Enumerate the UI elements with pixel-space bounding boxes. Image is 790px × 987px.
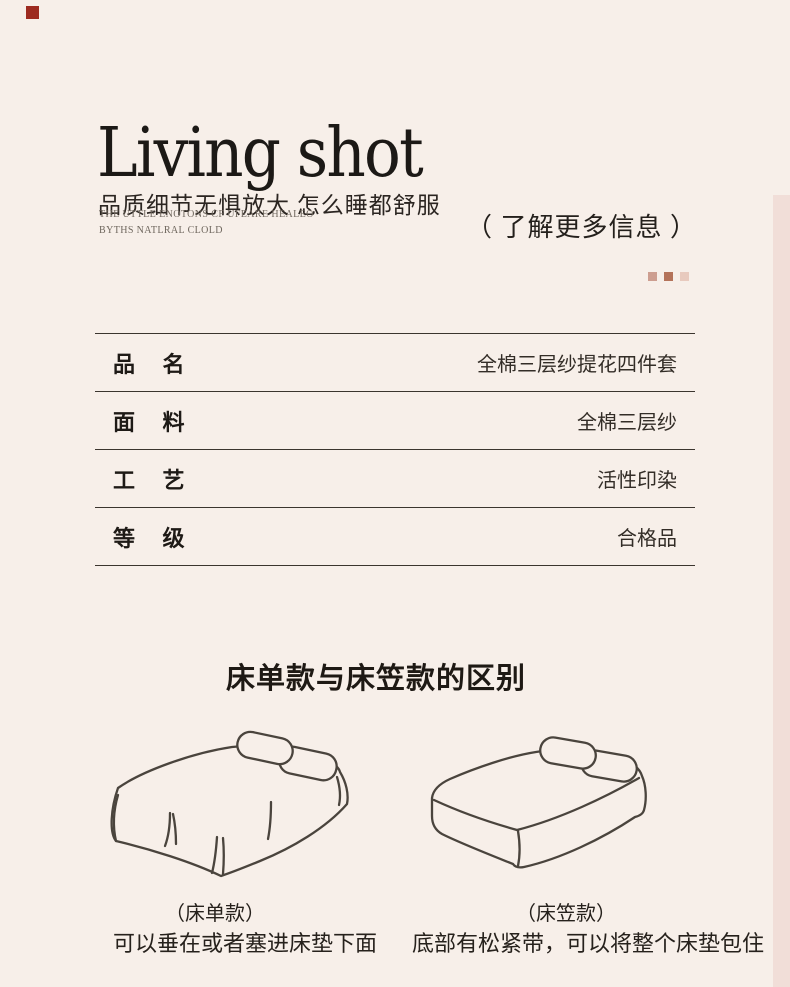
spec-value: 全棉三层纱: [577, 406, 695, 435]
spec-row-craft: 工 艺 活性印染: [95, 450, 695, 508]
brand-accent-square: [26, 6, 39, 19]
spec-row-grade: 等 级 合格品: [95, 508, 695, 566]
spec-label: 面 料: [95, 405, 186, 437]
spec-label: 工 艺: [95, 463, 186, 495]
spec-table: 品 名 全棉三层纱提花四件套 面 料 全棉三层纱 工 艺 活性印染 等 级 合格…: [95, 333, 695, 566]
product-detail-page: Living shot 品质细节无惧放大 怎么睡都舒服 THE UTTLE EN…: [0, 0, 790, 987]
spec-value: 合格品: [617, 522, 695, 551]
accent-dots: [648, 272, 689, 281]
english-tagline: THE UTTLE ENOTONS CF UFEARE HEALEO BYTHS…: [99, 207, 314, 239]
flat-sheet-caption-name: （床单款）: [130, 897, 300, 926]
fitted-sheet-caption-name: （床笠款）: [481, 897, 651, 926]
flat-sheet-caption-description: 可以垂在或者塞进床垫下面: [100, 926, 390, 958]
fitted-sheet-bed-illustration: [420, 700, 720, 890]
spec-row-name: 品 名 全棉三层纱提花四件套: [95, 334, 695, 392]
accent-dot-1: [648, 272, 657, 281]
fitted-sheet-caption-description: 底部有松紧带，可以将整个床垫包住: [412, 926, 760, 958]
spec-value: 全棉三层纱提花四件套: [477, 348, 695, 377]
more-info-text: （ 了解更多信息 ）: [466, 211, 697, 245]
spec-label: 等 级: [95, 521, 186, 553]
tagline-line-2: BYTHS NATLRAL CLOLD: [99, 223, 314, 239]
spec-label: 品 名: [95, 347, 186, 379]
spec-row-fabric: 面 料 全棉三层纱: [95, 392, 695, 450]
flat-sheet-bed-illustration: [80, 700, 380, 890]
accent-dot-3: [680, 272, 689, 281]
spec-value: 活性印染: [597, 464, 695, 493]
accent-dot-2: [664, 272, 673, 281]
tagline-line-1: THE UTTLE ENOTONS CF UFEARE HEALEO: [99, 207, 314, 223]
comparison-heading: 床单款与床笠款的区别: [0, 655, 752, 697]
page-title: Living shot: [97, 120, 422, 188]
right-edge-strip: [773, 195, 790, 987]
